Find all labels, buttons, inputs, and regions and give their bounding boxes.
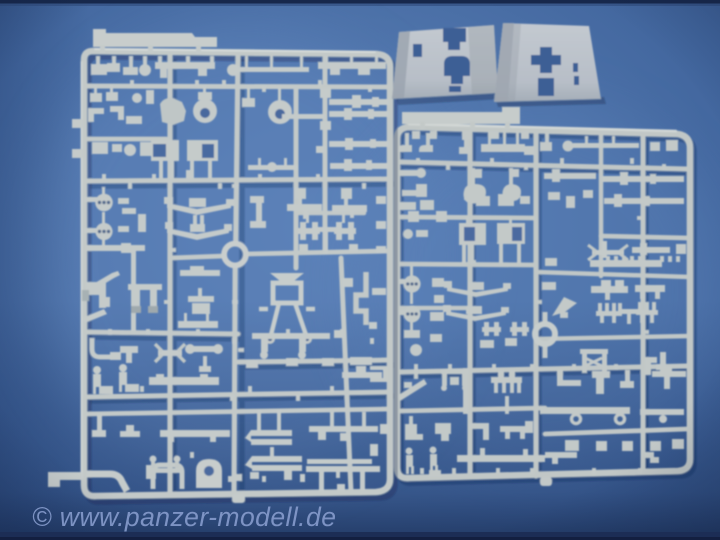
svg-text:© www.panzer-modell.de: © www.panzer-modell.de — [32, 502, 336, 532]
